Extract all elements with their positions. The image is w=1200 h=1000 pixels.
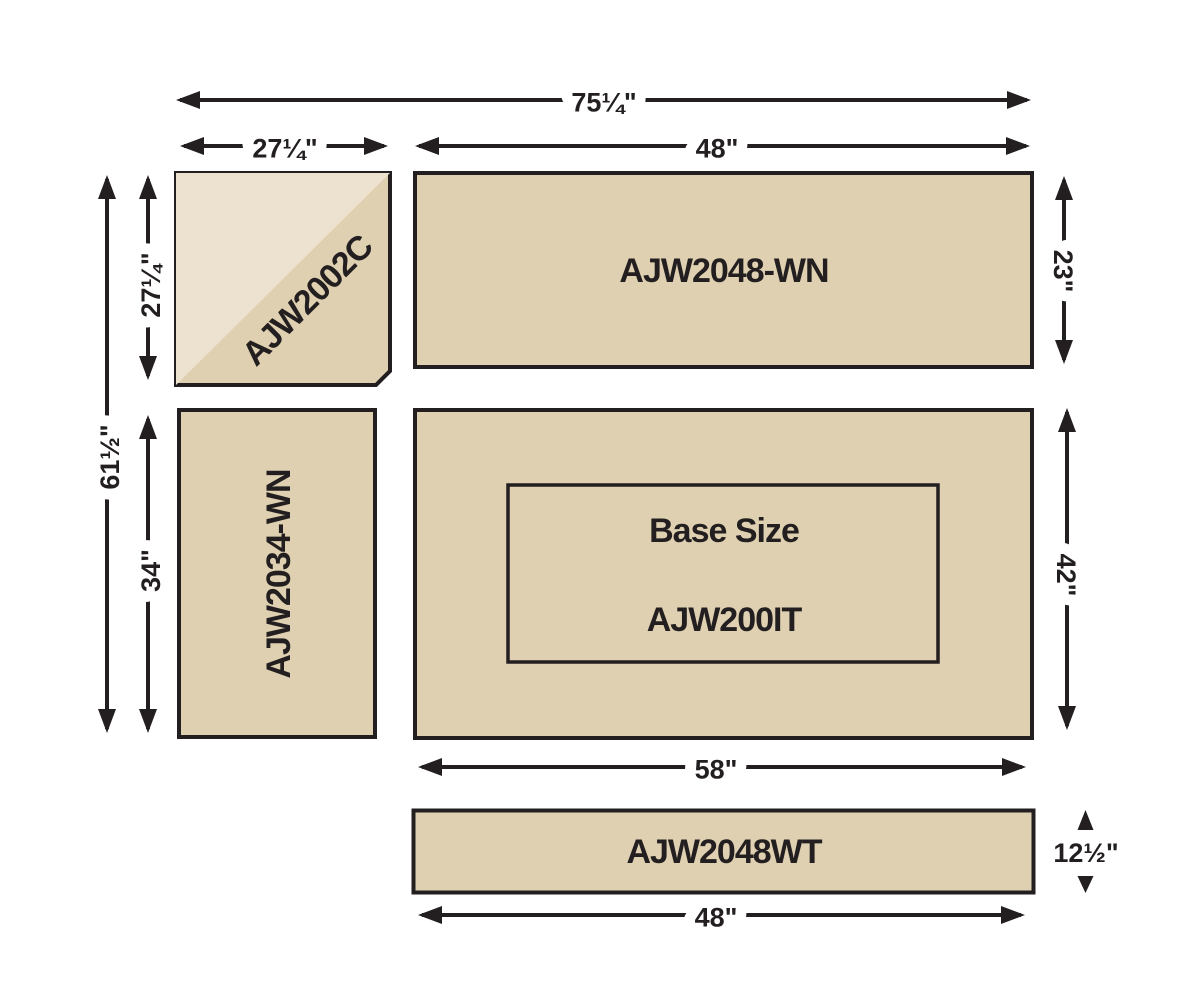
svg-text:AJW2048-WN: AJW2048-WN [619, 252, 828, 290]
svg-text:AJW2034-WN: AJW2034-WN [260, 469, 298, 678]
svg-text:23": 23" [1048, 250, 1078, 293]
svg-text:27¼": 27¼" [136, 252, 166, 317]
svg-text:27¼": 27¼" [252, 134, 317, 164]
svg-text:48": 48" [696, 134, 739, 164]
svg-text:AJW2048WT: AJW2048WT [626, 833, 822, 871]
svg-text:48": 48" [695, 903, 738, 933]
svg-text:58": 58" [695, 755, 738, 785]
svg-text:AJW200IT: AJW200IT [647, 601, 803, 639]
svg-text:12½": 12½" [1053, 838, 1118, 868]
svg-text:Base Size: Base Size [649, 512, 799, 550]
svg-text:61½": 61½" [95, 424, 125, 489]
svg-text:42": 42" [1051, 554, 1081, 597]
svg-text:34": 34" [136, 549, 166, 592]
svg-text:75¼": 75¼" [571, 88, 636, 118]
